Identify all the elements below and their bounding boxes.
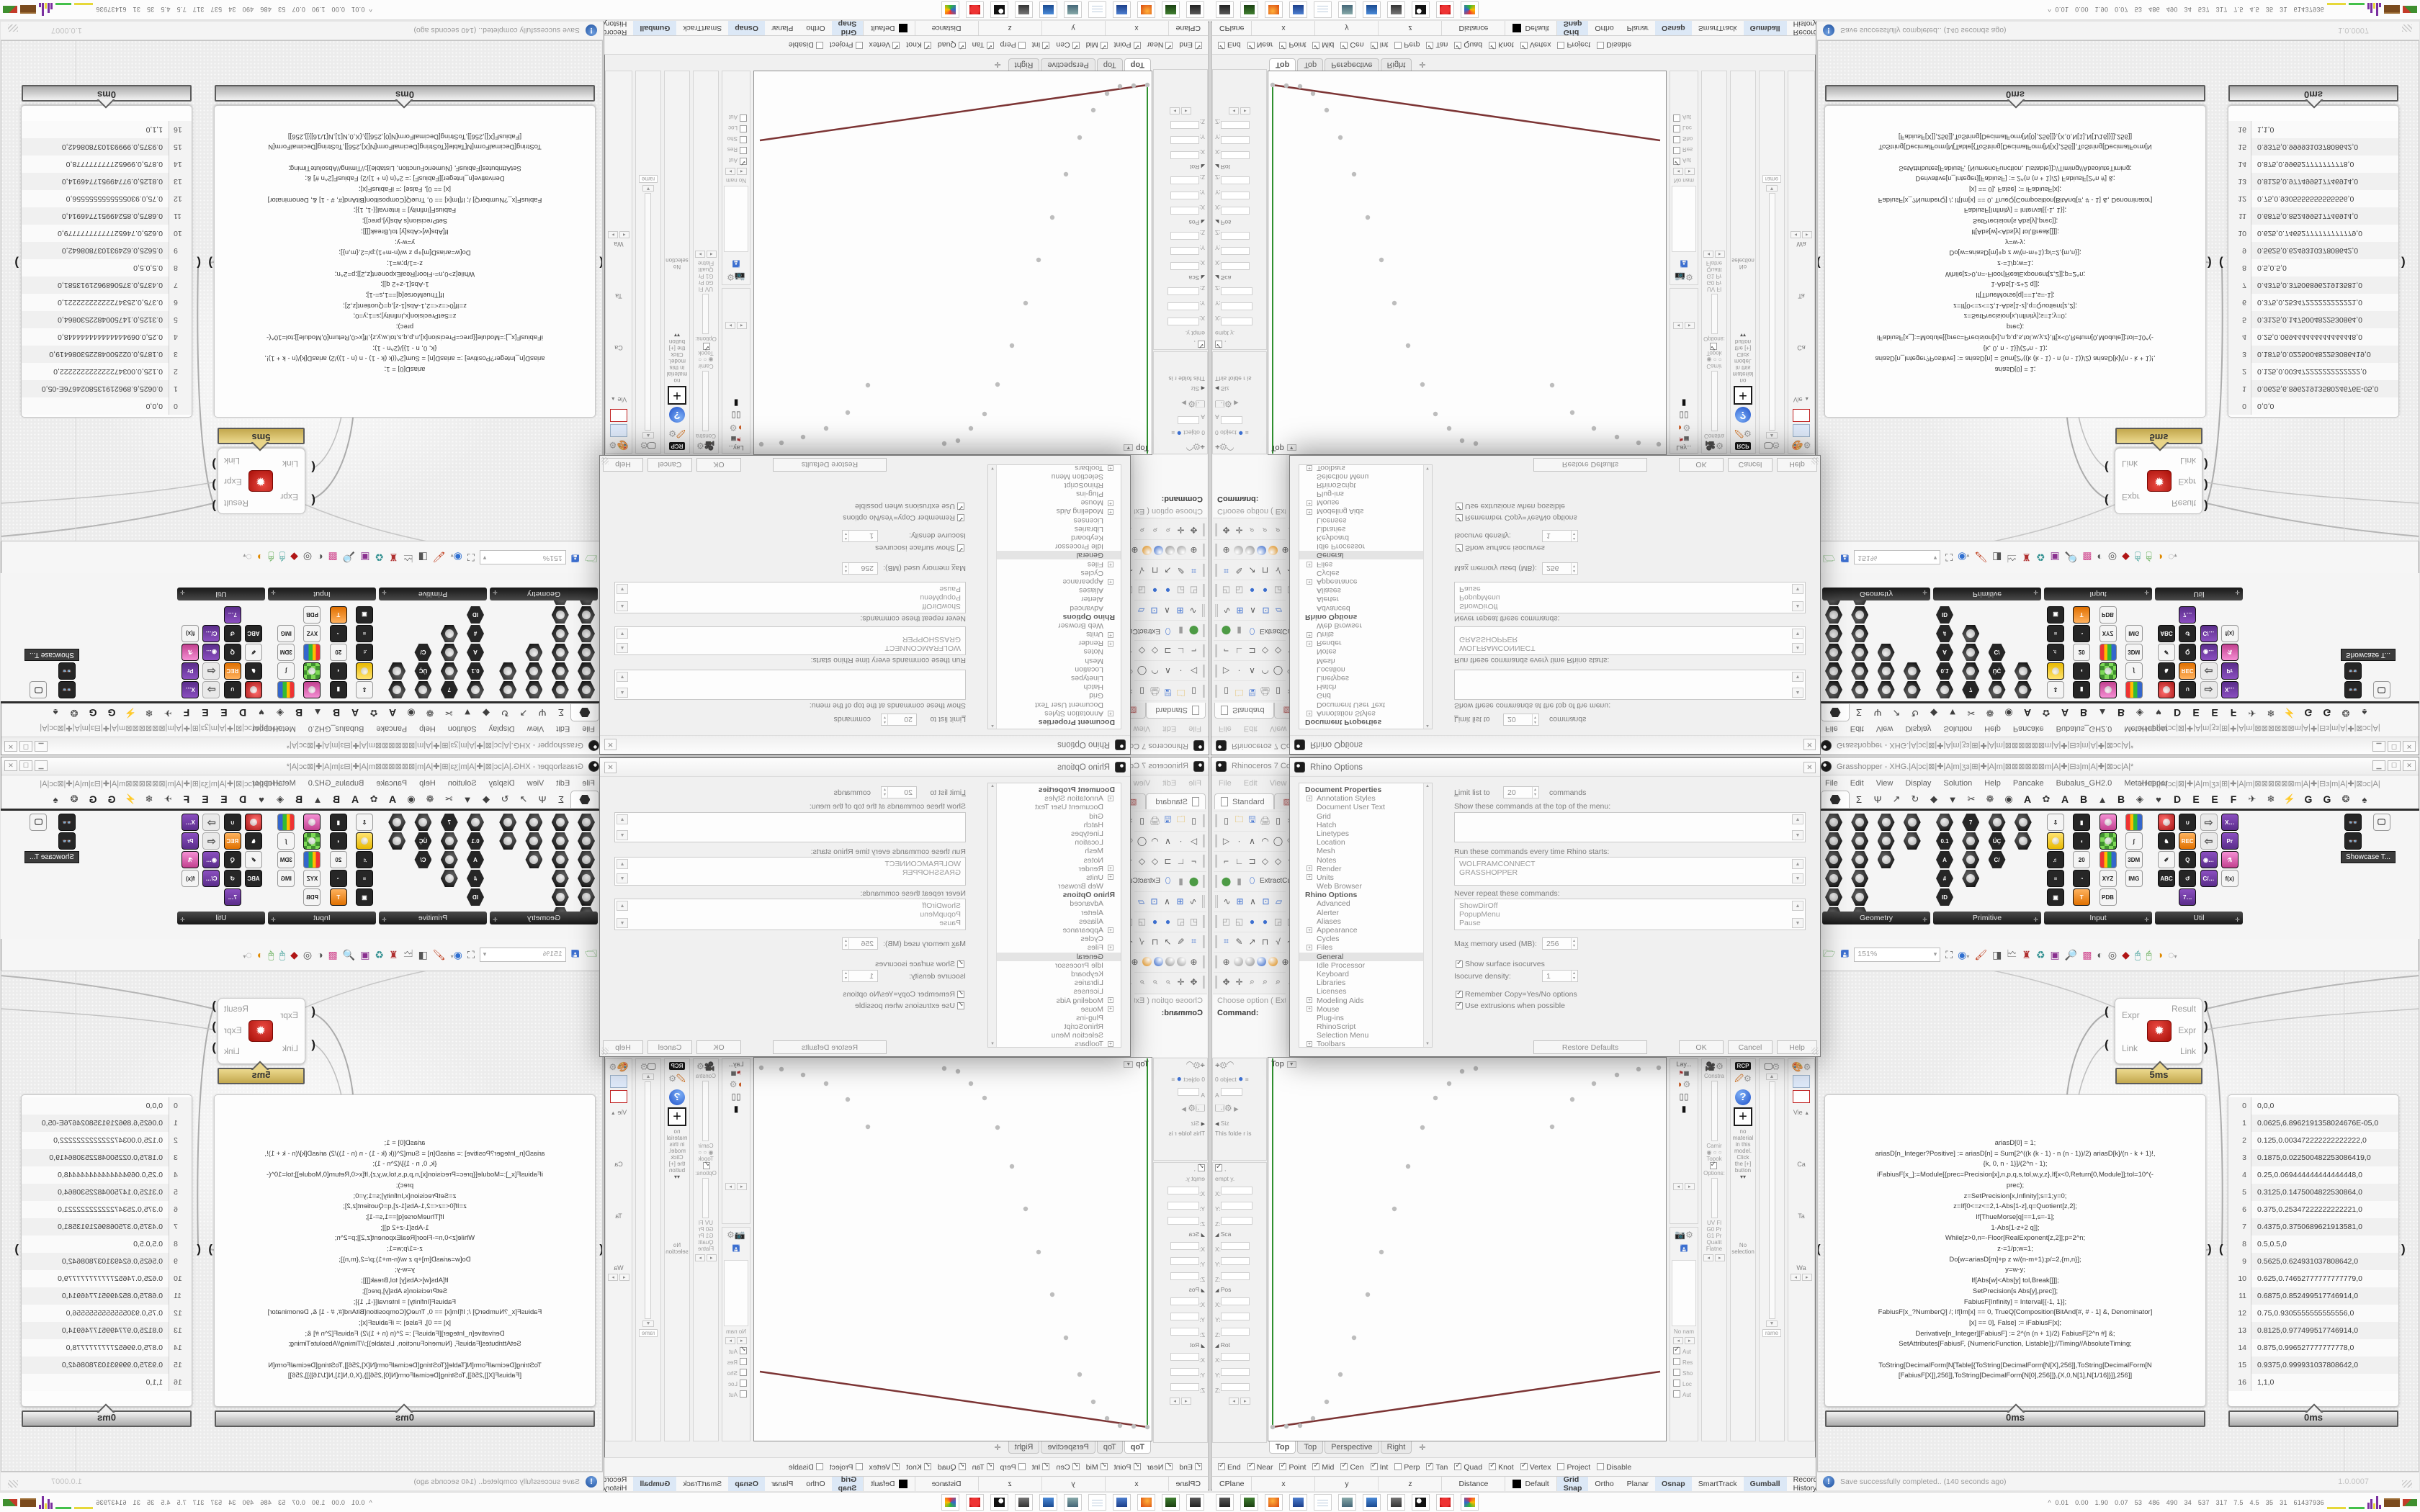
component-icon[interactable]: ∪ [2179,681,2196,698]
tree-item-licenses[interactable]: Licenses [1299,516,1432,525]
tool-icon[interactable]: ⊕ [1221,957,1232,967]
tool-icon[interactable]: ◯ [1137,667,1147,677]
tool-icon[interactable]: ∟ [1234,856,1245,866]
component-icon[interactable]: ⚗ [181,644,199,661]
component-icon[interactable]: ✐ [245,644,262,661]
tree-item-linetypes[interactable]: Linetypes [988,674,1121,683]
gh-tab[interactable]: ⚡ [121,792,140,806]
tree-item-advanced[interactable]: Advanced [1299,899,1432,908]
component-icon[interactable] [1851,832,1868,850]
gh-tab[interactable]: E [215,792,233,806]
component-icon[interactable]: 3DM [277,644,295,661]
component-icon[interactable]: ÜÇ [1989,662,2006,680]
component-icon[interactable]: REC [2179,832,2196,850]
viewport-tab-perspective[interactable]: Perspective [1325,58,1379,71]
never-repeat-listbox[interactable]: ▲ ▼ ShowDirOffPopupMenuPause [1454,582,1806,613]
component-icon[interactable] [552,662,569,680]
tool-icon[interactable]: ▮ [1175,876,1186,886]
open-file-icon[interactable]: 🗁 [585,549,597,566]
port-link-out[interactable]: Link [2180,1046,2196,1056]
red-gem-icon[interactable]: ◆ [290,552,298,564]
component-icon[interactable]: XYZ [304,625,321,642]
tree-scrollbar[interactable] [1423,783,1432,1047]
maximize-button[interactable]: ☐ [19,760,32,771]
viewport-title-dropdown-icon[interactable]: ▼ [1124,445,1133,451]
tree-item-selection-menu[interactable]: Selection Menu [1299,1031,1432,1040]
port-expr-in[interactable]: Expr [2122,1010,2140,1020]
isocurves-checkbox[interactable]: Show surface isocurves [875,960,964,968]
osnap-vertex[interactable]: Vertex [869,1463,900,1472]
component-icon[interactable] [277,814,295,831]
component-icon[interactable]: ≡ [356,870,373,887]
component-icon[interactable]: C/ [415,644,432,661]
component-icon[interactable] [356,832,373,850]
help-icon[interactable]: ? [669,1089,685,1105]
status-resize-grip[interactable] [8,24,18,32]
rhino-menu-view[interactable]: View [1134,724,1151,733]
component-icon[interactable]: ⇨ [203,681,220,698]
rhino-transform-panel[interactable]: ,empt y.X:Y:Z:◢ ScaX:Y:Z:◢ PosX:Y:Z:◢ Ro… [1153,1162,1208,1443]
gh-tab[interactable]: G [84,792,102,806]
gh-menu-solution[interactable]: Solution [1943,779,1972,788]
tool-icon[interactable]: ⊕ [1129,957,1140,967]
display-scroll-track[interactable] [645,1081,652,1319]
tree-item-modeling-aids[interactable]: +Modeling Aids [988,996,1121,1005]
status-toggle-grid-snap[interactable]: Grid Snap [832,1477,864,1491]
taskbar-speaker-icon[interactable] [1387,1,1405,18]
component-icon[interactable] [526,662,543,680]
gh-tab[interactable]: A [383,792,402,806]
component-icon[interactable] [2015,662,2032,680]
component-icon[interactable]: ⚗ [181,851,199,868]
component-icon[interactable] [526,681,543,698]
component-icon[interactable] [1825,681,1842,698]
taskbar-monitor-icon[interactable] [1216,1494,1234,1511]
panel-input-grip[interactable]: ( [599,1242,603,1256]
component-icon[interactable] [1825,644,1842,661]
extrusions-checkbox[interactable]: Use extrusions when possible [855,502,964,510]
tray-chart-green[interactable] [2349,3,2365,16]
component-icon[interactable]: Pr [2221,832,2238,850]
cancel-button[interactable]: Cancel [647,1040,692,1054]
component-icon[interactable]: ⇦ [203,662,220,680]
tool-icon[interactable]: ✛ [1234,526,1245,536]
tab-standard[interactable]: Standard [1146,703,1206,719]
tree-item-location[interactable]: Location [988,665,1121,674]
osnap-near[interactable]: Near [1247,41,1273,50]
panel-nav-left[interactable]: ◂ [737,1337,747,1344]
red-gem-icon[interactable]: ◆ [2122,949,2130,961]
gh-menu-edit[interactable]: Edit [1850,779,1864,788]
rhino-viewport-top[interactable]: Top ▼ [1268,71,1667,455]
preview-eye-icon[interactable]: ◉▾ [1958,552,1969,564]
tool-icon[interactable]: ⌕ [1137,976,1147,987]
sphere-tool-icon[interactable] [1245,957,1255,966]
component-icon[interactable] [1851,814,1868,831]
top-commands-listbox[interactable]: ▲ ▼ [614,812,966,842]
tool-icon[interactable]: ⌗ [1221,565,1232,576]
component-icon[interactable] [578,681,595,698]
layers-panel[interactable]: Lay... ⚑▦ ◗⚙ ▯▯ ▮ ◂▸ [722,1058,750,1224]
gh-tab[interactable]: A [346,706,364,720]
command-prompt[interactable]: Command: [1217,491,1286,503]
component-icon[interactable] [2099,832,2117,850]
component-icon[interactable]: ID [1936,606,1953,624]
gh-tab[interactable]: ⚡ [2280,792,2299,806]
mathematica-link-component[interactable]: Expr Link Result Expr Link ✹ [218,448,305,514]
component-icon[interactable]: # [1936,870,1953,887]
taskbar-speaker-icon[interactable] [1015,1,1033,18]
component-icon[interactable]: ↺ [2179,870,2196,887]
gh-menu-solution[interactable]: Solution [448,779,477,788]
mouse-orange-icon[interactable]: ◑ [2157,949,2163,960]
component-icon[interactable] [245,681,262,698]
component-icon[interactable] [356,662,373,680]
panel-nav-left[interactable]: ◂ [1673,1183,1683,1190]
tool-icon[interactable]: ∟ [1175,647,1186,657]
component-icon[interactable] [2047,832,2064,850]
rhino-transform-panel[interactable]: ,empt y.X:Y:Z:◢ ScaX:Y:Z:◢ PosX:Y:Z:◢ Ro… [1153,69,1208,350]
tree-item-cycles[interactable]: Cycles [988,935,1121,943]
tool-icon[interactable]: ✥ [1188,526,1199,536]
limit-spinner[interactable]: 20 [1503,786,1539,798]
component-icon[interactable] [1851,870,1868,887]
tab-standard[interactable]: Standard [1146,793,1206,809]
status-layer[interactable]: Default [1505,1477,1556,1491]
extrusions-checkbox[interactable]: Use extrusions when possible [855,1002,964,1010]
tool-icon[interactable]: ∧ [1247,667,1258,677]
tool-icon[interactable]: ∙ [1175,667,1186,677]
tool-icon[interactable]: ⌗ [1188,565,1199,576]
output-grip[interactable]: ) [2204,999,2208,1013]
tree-item-aliases[interactable]: Aliases [1299,586,1432,595]
panel-output-grip[interactable]: ) [14,1242,19,1256]
tree-item-units[interactable]: +Units [1299,873,1432,882]
gha-badge-icon[interactable]: ▣ [360,949,369,961]
component-icon[interactable] [1851,606,1868,624]
palette-label-util[interactable]: Util [177,912,265,924]
taskbar-floppy-icon[interactable] [1289,1494,1307,1511]
component-icon[interactable] [578,888,595,906]
cancel-button[interactable]: Cancel [1728,1040,1773,1054]
output-grip[interactable]: ) [212,457,216,472]
palette-label-primitive[interactable]: Primitive [379,912,487,924]
component-icon[interactable] [304,832,321,850]
never-repeat-listbox[interactable]: ▲ ▼ ShowDirOffPopupMenuPause [614,899,966,930]
tool-icon[interactable]: ⊡ [1149,896,1160,906]
component-icon[interactable]: ↺ [2179,625,2196,642]
gh-menu-display[interactable]: Display [489,724,515,733]
listbox-scroll-down[interactable]: ▼ [1792,672,1803,682]
listbox-scroll-up[interactable]: ▲ [617,901,628,911]
gh-menu-bubalus_gh2.0[interactable]: Bubalus_GH2.0 [308,724,364,733]
mouse-green-icon[interactable]: 🖰 [268,552,274,564]
component-icon[interactable]: f(x) [2221,870,2238,887]
tree-item-grid[interactable]: Grid [988,812,1121,821]
component-icon[interactable]: T [330,888,347,906]
component-icon[interactable]: # [467,870,484,887]
listbox-scroll-down[interactable]: ▼ [617,873,628,883]
gh-tab[interactable]: ↻ [496,792,514,806]
tree-scrollbar[interactable] [1423,465,1432,729]
showcase-icon[interactable]: 👓 [58,681,76,698]
osnap-tan[interactable]: Tan [972,1463,994,1472]
zoom-extents-icon[interactable]: ⛶ [467,949,475,961]
viewport-tab-perspective[interactable]: Perspective [1041,1441,1095,1454]
tree-item-location[interactable]: Location [988,838,1121,847]
tool-icon[interactable]: ◲ [1137,917,1147,927]
component-icon[interactable] [526,832,543,850]
taskbar-blue-monitor-icon[interactable] [1363,1,1381,18]
render-settings-panel[interactable]: 🎥⚙ConstraCamir◉ ○ ○TopokOptions:UV FlG0 … [1701,1058,1727,1441]
viewport-tab-top[interactable]: Top [1269,1441,1296,1454]
taskbar-grasshopper-icon[interactable] [1436,1494,1454,1511]
tree-item-location[interactable]: Location [1299,838,1432,847]
component-icon[interactable] [2099,851,2117,868]
save-file-icon[interactable]: 🖪 [571,946,580,963]
showcase-icon[interactable]: 🖵 [30,814,48,831]
tool-icon[interactable]: ▯ [1221,816,1232,826]
scroll-up-button[interactable]: ▲ [1766,432,1778,438]
component-icon[interactable]: Q [224,851,241,868]
tool-icon[interactable]: 🖨 [1149,816,1160,826]
output-grip[interactable]: ) [212,999,216,1013]
tree-item-annotation-styles[interactable]: +Annotation Styles [1299,794,1432,803]
tree-item-libraries[interactable]: Libraries [988,525,1121,534]
gh-menu-solution[interactable]: Solution [1943,724,1972,733]
red-gem-icon[interactable]: ◆ [290,949,298,961]
tool-icon[interactable]: ◇ [1149,856,1160,866]
tool-icon[interactable]: ⬯ [1162,626,1173,636]
gh-tab[interactable]: B [290,706,308,720]
help-button[interactable]: Help [603,1040,643,1054]
viewport-tab-top[interactable]: Top [1097,1441,1123,1454]
tree-item-advanced[interactable]: Advanced [988,603,1121,612]
tree-item-web-browser[interactable]: Web Browser [988,882,1121,891]
tree-item-linetypes[interactable]: Linetypes [988,829,1121,838]
tool-icon[interactable]: ▯ [1188,816,1199,826]
status-z[interactable]: z [1379,21,1442,35]
component-icon[interactable] [1851,681,1868,698]
rhino-viewport-top[interactable]: Top ▼ [753,71,1152,455]
component-icon[interactable] [1825,814,1842,831]
port-link-out[interactable]: Link [224,456,240,466]
gh-tab[interactable]: ▼ [1943,706,1962,720]
component-icon[interactable] [1825,870,1842,887]
tree-scrollbar[interactable] [988,783,997,1047]
tool-icon[interactable]: ⊞ [1175,896,1186,906]
gh-tab[interactable]: ❁ [1981,706,1999,720]
component-icon[interactable] [1962,851,1979,868]
osnap-mid[interactable]: Mid [1086,41,1108,50]
tool-icon[interactable]: ⊞ [1175,606,1186,616]
gh-tab[interactable]: G [102,792,121,806]
tree-item-selection-menu[interactable]: Selection Menu [988,472,1121,481]
gh-tab[interactable]: ♥ [2149,793,2168,806]
gh-canvas[interactable]: Expr Link Result Expr Link ✹ ( ( ) ) ) 5… [1817,971,2419,1472]
component-icon[interactable] [2099,681,2117,698]
listbox-scroll-down[interactable]: ▼ [617,584,628,594]
taskbar-green-app-icon[interactable] [1162,1,1180,18]
rhino-menu-edit[interactable]: Edit [1162,779,1176,788]
component-icon[interactable] [2125,681,2143,698]
status-layer[interactable]: Default [863,21,914,35]
tree-item-render[interactable]: +Render [1299,639,1432,647]
selection-lasso-icon[interactable]: ◌▾ [243,552,251,563]
tree-item-document-properties[interactable]: Document Properties [1299,786,1432,794]
tool-icon[interactable]: 🖫 [1162,813,1173,828]
tray-chart-green[interactable] [55,3,71,16]
component-icon[interactable]: IMG [277,625,295,642]
tool-icon[interactable]: ⊞ [1234,896,1245,906]
open-file-icon[interactable]: 🗁 [1823,946,1835,963]
osnap-end[interactable]: End [1179,1463,1202,1472]
showcase-icon[interactable]: 👓 [58,814,76,831]
page-search-icon[interactable]: 🔎 [2065,949,2077,961]
name-field[interactable]: rame [1762,1329,1781,1337]
port-result-out[interactable]: Result [224,498,248,508]
status-toggle-grid-snap[interactable]: Grid Snap [1557,21,1589,35]
pink-box-icon[interactable]: ▩ [328,949,338,961]
component-icon[interactable] [467,814,484,831]
render-settings-panel[interactable]: 🎥⚙ConstraCamir◉ ○ ○TopokOptions:UV FlG0 … [1701,71,1727,454]
tool-icon[interactable]: ● [1149,586,1160,596]
component-icon[interactable] [1962,832,1979,850]
startup-commands-listbox[interactable]: ▲ ▼ WOLFRAMCONNECTGRASSHOPPER [1454,857,1806,886]
gh-menu-view[interactable]: View [1876,779,1894,788]
component-icon[interactable] [1989,681,2006,698]
density-spinner[interactable]: 1 [842,970,878,982]
mouse-green-icon[interactable]: 🖰 [2146,949,2151,961]
component-icon[interactable]: 3DM [2125,644,2143,661]
panel-output-grip[interactable]: ) [208,1242,212,1256]
tree-item-keyboard[interactable]: Keyboard [1299,970,1432,978]
osnap-end[interactable]: End [1218,41,1241,50]
selection-lasso-icon[interactable]: ◌▾ [243,949,251,960]
component-icon[interactable] [578,644,595,661]
component-icon[interactable] [1825,851,1842,868]
dialog-resize-grip[interactable] [601,1048,609,1055]
component-icon[interactable]: ▮ [2073,681,2090,698]
component-icon[interactable] [1851,851,1868,868]
mathematica-link-component[interactable]: Expr Link Result Expr Link ✹ [2115,998,2202,1064]
mouse-orange-icon[interactable]: ◑ [2157,552,2163,563]
gh-menu-file[interactable]: File [1825,724,1838,733]
rhino-menu-view[interactable]: View [1270,724,1287,733]
minimize-button[interactable]: ▁ [2372,760,2385,771]
gh-tab[interactable]: ↗ [514,706,533,720]
gh-tab[interactable]: E [215,706,233,720]
component-icon[interactable] [499,681,516,698]
gh-menu-display[interactable]: Display [489,779,515,788]
density-spinner[interactable]: 1 [1542,970,1578,982]
add-viewport-tab[interactable]: ✛ [989,58,1007,71]
osnap-near[interactable]: Near [1147,41,1173,50]
port-link-in[interactable]: Link [282,459,298,469]
tool-icon[interactable]: ◰ [1221,917,1232,927]
component-icon[interactable]: f(x) [181,625,199,642]
component-icon[interactable]: A [1936,851,1953,868]
gh-tab[interactable]: E [2205,706,2224,720]
dialog-close-button[interactable]: ✕ [1803,762,1816,773]
component-icon[interactable]: ÜÇ [415,832,432,850]
tree-item-toolbars[interactable]: +Toolbars [1299,1040,1432,1048]
tool-icon[interactable]: ● [1149,917,1160,927]
tool-icon[interactable]: ▱ [1136,896,1147,906]
grasshopper-window[interactable]: Grasshopper - XHG.|A|ɔc|⊠|✚|A|m|ʒɜ|⊞|✚|A… [1816,22,2419,755]
gh-tab[interactable]: ✂ [1962,706,1981,720]
taskbar-palette-icon[interactable] [1461,1,1479,18]
viewport-tab-top[interactable]: Top [1297,58,1323,71]
scroll-up-button[interactable]: ▲ [642,1074,654,1080]
tool-icon[interactable]: 🖨 [1260,816,1270,826]
tool-icon[interactable]: ⌕ [1162,525,1173,536]
component-icon[interactable] [1936,814,1953,831]
display-panel[interactable]: 🖵⚙ ▲ ▼ rame [635,1058,661,1441]
listbox-scroll-down[interactable]: ▼ [617,672,628,682]
tree-item-document-user-text[interactable]: Document User Text [988,700,1121,708]
osnap-int[interactable]: Int [1032,41,1050,50]
name-field[interactable]: rame [1762,175,1781,183]
output-grip[interactable]: ) [2204,1040,2208,1055]
tree-item-plug-ins[interactable]: Plug-ins [1299,490,1432,498]
add-material-button[interactable]: + [668,386,686,405]
component-icon[interactable] [1825,662,1842,680]
osnap-project[interactable]: Project [830,41,863,50]
gh-tab[interactable]: D [233,706,252,720]
port-expr-out[interactable]: Expr [224,1025,242,1035]
gh-menu-file[interactable]: File [1825,779,1838,788]
tree-item-aliases[interactable]: Aliases [988,586,1121,595]
rhino-command-area[interactable]: Choose option ( ExteCommand: _OptionsCom… [1213,994,1286,1057]
osnap-quad[interactable]: Quad [1454,1463,1482,1472]
tree-item-advanced[interactable]: Advanced [1299,603,1432,612]
showcase-icon[interactable]: 👓 [2344,814,2362,831]
component-icon[interactable]: ID [467,888,484,906]
gha-teal-icon[interactable]: ♻ [2036,552,2045,564]
tree-item-libraries[interactable]: Libraries [1299,978,1432,987]
status-resize-grip[interactable] [2402,1480,2412,1488]
restore-defaults-button[interactable]: Restore Defaults [1533,1040,1647,1054]
tool-icon[interactable]: ▮ [1175,626,1186,636]
rings-icon[interactable]: ◎ [303,552,312,564]
rhino-menu-edit[interactable]: Edit [1244,779,1258,788]
status-toggle-gumball[interactable]: Gumball [1744,1477,1787,1491]
osnap-vertex[interactable]: Vertex [869,41,900,50]
component-icon[interactable]: T [330,606,347,624]
component-icon[interactable] [304,681,321,698]
tree-item-rhino-options[interactable]: Rhino Options [988,613,1121,621]
marker-icon[interactable]: ♜ [2022,949,2031,961]
gh-tab[interactable]: ◉ [402,706,421,720]
component-icon[interactable]: ⇨ [2200,814,2218,831]
gh-tab[interactable]: ✿ [364,792,383,806]
display-scroll-track[interactable] [1769,1081,1775,1319]
viewport-properties-panel[interactable]: 🎨⚙Vie ▲CaTaWa◂▸ [1788,1058,1815,1441]
tool-icon[interactable]: ▱ [1273,606,1284,616]
osnap-tan[interactable]: Tan [972,41,994,50]
taskbar-notepad-icon[interactable] [1088,1494,1106,1511]
panel-nav-left[interactable]: ◂ [1673,168,1683,175]
tray-chart-red[interactable] [3,1499,17,1506]
panel-nav-right[interactable]: ▸ [1685,1183,1695,1190]
mouse-teal-icon[interactable]: 🖰 [2135,552,2141,564]
gh-tab[interactable]: ✿ [364,706,383,720]
code-panel[interactable]: ariasD[0] = 1;ariasD[n_Integer?Positive]… [1824,1094,2206,1407]
component-icon[interactable]: ✐ [245,851,262,868]
tool-icon[interactable]: ⌕ [1273,976,1283,987]
tray-expand-icon[interactable]: ^ [2048,1499,2051,1506]
